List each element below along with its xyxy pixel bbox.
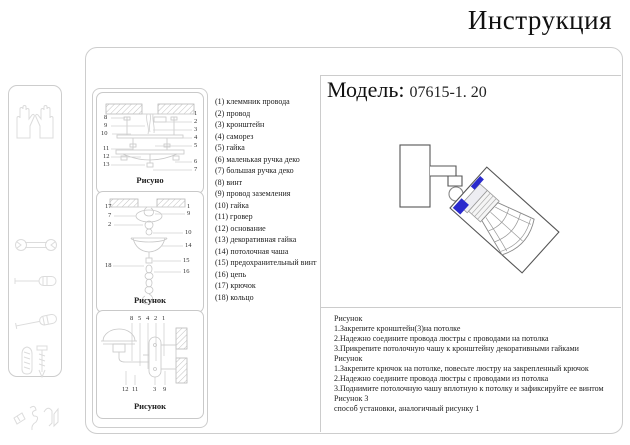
figure-1-label: Рисуно (97, 175, 203, 185)
callout-number: 5 (194, 143, 197, 150)
callout-number: 12 (122, 387, 129, 394)
instruction-line: 2.Надежно соедините провода люстры с про… (334, 374, 620, 384)
callout-number: 4 (146, 316, 149, 323)
page-title: Инструкция (468, 5, 612, 36)
model-label: Модель: (327, 77, 404, 102)
callout-number: 7 (108, 213, 111, 220)
part-item: (5) гайка (215, 142, 327, 154)
callout-number: 11 (103, 146, 109, 153)
part-item: (15) предохранительный винт (215, 257, 327, 269)
instruction-line: 1.Закрепите кронштейн(3)на потолке (334, 324, 620, 334)
product-drawing (390, 118, 590, 298)
assembly-instructions: Рисунок 1.Закрепите кронштейн(3)на потол… (334, 314, 620, 414)
part-item: (11) гровер (215, 211, 327, 223)
callout-number: 13 (103, 162, 110, 169)
callout-number: 2 (194, 119, 197, 126)
part-item: (7) большая ручка деко (215, 165, 327, 177)
part-item: (17) крючок (215, 280, 327, 292)
parts-list: (1) клеммник провода (2) провод (3) крон… (215, 96, 327, 303)
instruction-line: способ установки, аналогичный рисунку 1 (334, 404, 620, 414)
callout-number: 14 (185, 243, 192, 250)
figure-3-label: Рисунок (97, 401, 203, 411)
part-item: (2) провод (215, 108, 327, 120)
part-item: (14) потолочная чаша (215, 246, 327, 258)
model-top-divider (320, 75, 621, 76)
figure-1-panel: 8 9 10 11 12 13 1 2 3 4 5 6 7 Рисуно (96, 92, 204, 194)
instruction-line: Рисунок (334, 314, 620, 324)
callout-number: 8 (130, 316, 133, 323)
model-number: 07615-1. 20 (409, 84, 486, 101)
callout-number: 1 (162, 316, 165, 323)
part-item: (12) основание (215, 223, 327, 235)
callout-number: 11 (132, 387, 138, 394)
part-item: (4) саморез (215, 131, 327, 143)
callout-number: 12 (103, 154, 110, 161)
callout-number: 3 (194, 127, 197, 134)
callout-number: 16 (183, 269, 190, 276)
instructions-divider (321, 307, 621, 308)
part-item: (13) декоративная гайка (215, 234, 327, 246)
instruction-line: 1.Закрепите крючок на потолке, повесьте … (334, 364, 620, 374)
callout-number: 15 (183, 258, 190, 265)
part-item: (1) клеммник провода (215, 96, 327, 108)
screws-icon (21, 344, 51, 380)
instruction-line: Рисунок (334, 354, 620, 364)
screwdriver-icon (14, 273, 58, 289)
part-item: (9) провод заземления (215, 188, 327, 200)
callout-number: 2 (154, 316, 157, 323)
instruction-line: 3.Прикрепите потолочную чашу к кронштейн… (334, 344, 620, 354)
figure-2-panel: 17 7 2 18 1 9 10 14 15 16 Рисунок (96, 191, 204, 313)
callout-number: 10 (101, 131, 108, 138)
anchors-icon (12, 400, 60, 434)
callout-number: 9 (163, 387, 166, 394)
instruction-line: 2.Надежно соедините провода люстры с про… (334, 334, 620, 344)
callout-number: 7 (194, 167, 197, 174)
part-item: (16) цепь (215, 269, 327, 281)
figure-2-label: Рисунок (97, 295, 203, 305)
callout-number: 5 (138, 316, 141, 323)
callout-number: 3 (153, 387, 156, 394)
tools-sidebar (8, 85, 62, 377)
part-item: (18) кольцо (215, 292, 327, 304)
callout-number: 9 (104, 123, 107, 130)
screwdriver-angled-icon (13, 304, 59, 332)
callout-number: 9 (187, 211, 190, 218)
part-item: (3) кронштейн (215, 119, 327, 131)
model-heading: Модель:07615-1. 20 (327, 77, 487, 103)
wrench-icon (14, 236, 58, 254)
gloves-icon (15, 96, 55, 140)
instruction-line: 3.Поднимите потолочную чашу вплотную к п… (334, 384, 620, 394)
callout-number: 1 (194, 111, 197, 118)
callout-number: 6 (194, 159, 197, 166)
instruction-line: Рисунок 3 (334, 394, 620, 404)
callout-number: 2 (108, 222, 111, 229)
callout-number: 17 (105, 204, 112, 211)
part-item: (10) гайка (215, 200, 327, 212)
figure-3-panel: 8 5 4 2 1 12 11 3 9 Рисунок (96, 310, 204, 419)
part-item: (6) маленькая ручка деко (215, 154, 327, 166)
callout-number: 10 (185, 230, 192, 237)
callout-number: 8 (104, 115, 107, 122)
callout-number: 4 (194, 135, 197, 142)
part-item: (8) винт (215, 177, 327, 189)
callout-number: 18 (105, 263, 112, 270)
